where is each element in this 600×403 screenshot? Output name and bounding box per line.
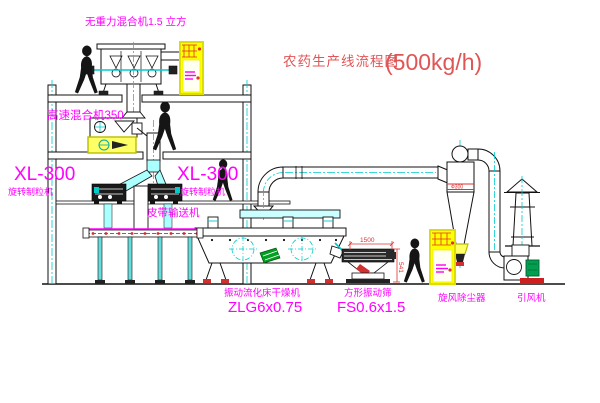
label-fan: 引风机	[517, 292, 546, 304]
fluid-bed-dryer	[195, 210, 346, 283]
induced-draft-fan	[504, 245, 544, 284]
label-belt-conveyor: 皮带输送机	[147, 206, 200, 219]
label-granulator-model-right: XL-300	[177, 164, 238, 185]
granulator-right	[148, 184, 182, 228]
granulator-left	[92, 184, 126, 228]
person-second-floor	[153, 102, 176, 151]
label-dryer-model: ZLG6x0.75	[228, 299, 302, 316]
dim-screen-length: 1500	[360, 237, 375, 244]
support-column	[134, 186, 148, 230]
label-dryer: 振动流化床干燥机	[224, 287, 301, 299]
label-zero-gravity-mixer: 无重力混合机1.5 立方	[85, 15, 187, 28]
conveyor-legs	[95, 237, 195, 284]
label-granulator-left: 旋转制粒机	[8, 186, 53, 197]
dim-screen-height: 541	[397, 262, 404, 273]
drawing-surface: 农药生产线流程图 (500kg/h) 无重力混合机1.5 立方 高速混合机350…	[0, 0, 600, 403]
vibrating-screen	[342, 241, 400, 283]
label-screen-model: FS0.6x1.5	[337, 299, 405, 316]
label-screen: 方形振动筛	[344, 287, 392, 299]
label-cyclone: 旋风除尘器	[438, 292, 486, 304]
fan-motor	[526, 260, 539, 276]
label-granulator-right: 旋转制粒机	[180, 186, 225, 197]
label-high-speed-mixer: 高速混合机350	[47, 108, 124, 122]
dim-cyclone-band: Ф300	[451, 185, 463, 191]
title-main: 农药生产线流程图	[283, 54, 399, 69]
cad-process-flow-drawing: 农药生产线流程图 (500kg/h) 无重力混合机1.5 立方 高速混合机350…	[0, 0, 600, 403]
title-capacity: (500kg/h)	[385, 49, 482, 75]
dryer-legs	[203, 263, 333, 283]
person-ground	[404, 239, 425, 283]
control-cabinet-right	[430, 230, 455, 284]
control-cabinet-top	[180, 42, 203, 94]
belt-conveyor	[83, 228, 203, 284]
fan-base	[520, 278, 544, 284]
label-granulator-model-left: XL-300	[14, 164, 75, 185]
